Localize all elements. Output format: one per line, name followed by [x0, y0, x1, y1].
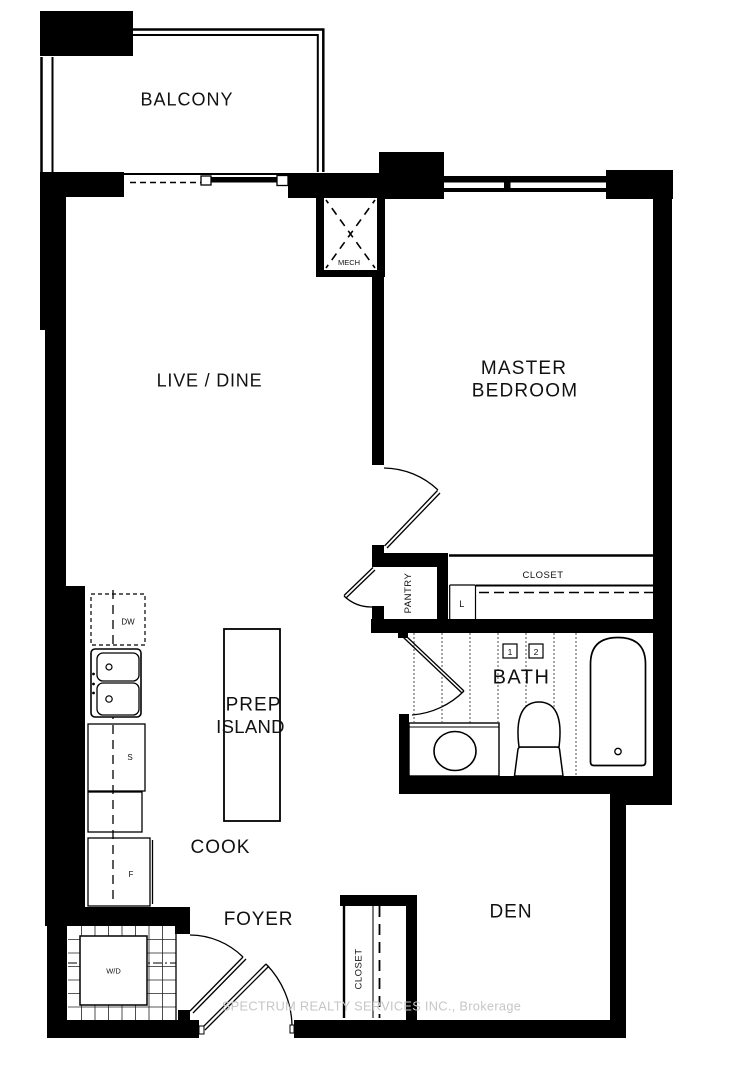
svg-text:PREP: PREP [226, 695, 282, 716]
svg-text:BEDROOM: BEDROOM [472, 381, 579, 402]
svg-text:CLOSET: CLOSET [522, 570, 563, 581]
svg-text:1: 1 [508, 647, 513, 657]
svg-text:LIVE / DINE: LIVE / DINE [157, 371, 263, 391]
svg-text:ISLAND: ISLAND [216, 716, 285, 737]
svg-text:COOK: COOK [191, 837, 251, 858]
svg-text:PANTRY: PANTRY [403, 573, 414, 614]
svg-text:F: F [129, 870, 134, 879]
svg-text:MASTER: MASTER [481, 358, 567, 379]
svg-text:FOYER: FOYER [224, 909, 293, 930]
svg-text:L: L [459, 599, 464, 609]
svg-text:DW: DW [121, 618, 135, 627]
svg-text:2: 2 [534, 647, 539, 657]
svg-text:S: S [127, 753, 132, 762]
svg-text:SPECTRUM REALTY SERVICES INC.,: SPECTRUM REALTY SERVICES INC., Brokerage [222, 999, 521, 1014]
svg-text:CLOSET: CLOSET [354, 948, 365, 989]
svg-text:BATH: BATH [493, 667, 551, 689]
svg-text:BALCONY: BALCONY [140, 90, 233, 110]
svg-text:MECH: MECH [338, 258, 360, 267]
svg-text:W/D: W/D [106, 967, 121, 976]
svg-text:DEN: DEN [489, 902, 532, 923]
